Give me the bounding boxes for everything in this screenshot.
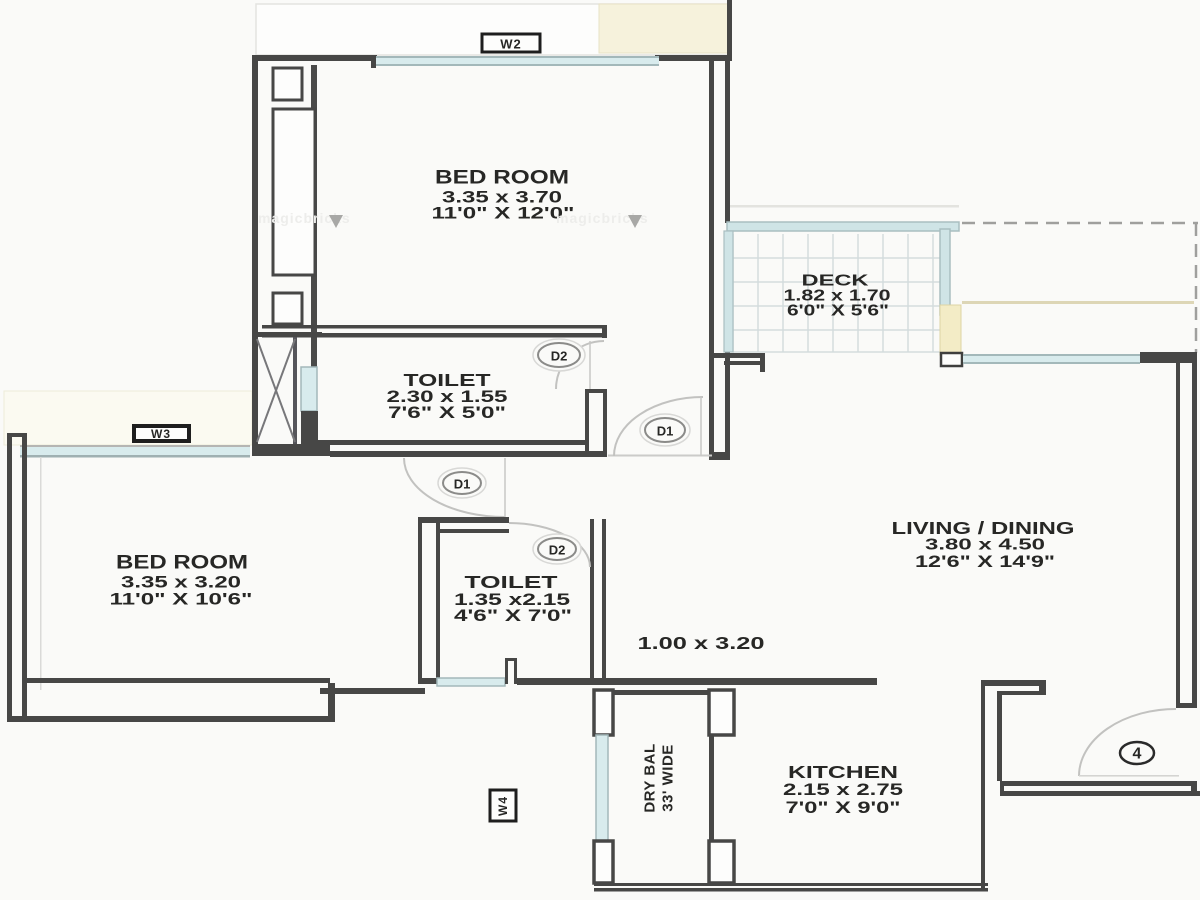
svg-text:33' WIDE: 33' WIDE [660,744,677,812]
svg-text:BED ROOM: BED ROOM [435,168,569,189]
svg-text:4'6" X 7'0": 4'6" X 7'0" [454,607,572,625]
svg-text:3.80 x 4.50: 3.80 x 4.50 [925,537,1045,554]
svg-text:TOILET: TOILET [465,572,558,592]
svg-text:D1: D1 [657,424,674,439]
svg-text:KITCHEN: KITCHEN [788,762,898,782]
svg-text:7'6" X 5'0": 7'6" X 5'0" [388,404,506,422]
svg-text:BED ROOM: BED ROOM [116,553,248,574]
svg-text:11'0" X 10'6": 11'0" X 10'6" [110,590,253,609]
svg-text:2.15 x 2.75: 2.15 x 2.75 [783,781,903,799]
svg-text:11'0" X 12'0": 11'0" X 12'0" [432,204,575,223]
svg-text:TOILET: TOILET [404,370,491,390]
svg-text:4: 4 [1133,746,1142,763]
svg-text:W2: W2 [500,37,522,52]
svg-text:W3: W3 [151,427,171,441]
svg-text:DRY BAL: DRY BAL [642,743,659,812]
svg-text:D1: D1 [454,477,471,492]
svg-text:D2: D2 [549,543,566,558]
svg-text:D2: D2 [551,349,568,364]
svg-text:W4: W4 [496,796,510,816]
svg-text:LIVING / DINING: LIVING / DINING [892,518,1075,538]
svg-text:7'0" X 9'0": 7'0" X 9'0" [786,799,901,817]
svg-text:12'6" X 14'9": 12'6" X 14'9" [915,553,1055,571]
svg-text:1.00 x 3.20: 1.00 x 3.20 [638,633,765,653]
svg-text:6'0" X 5'6": 6'0" X 5'6" [787,303,889,320]
